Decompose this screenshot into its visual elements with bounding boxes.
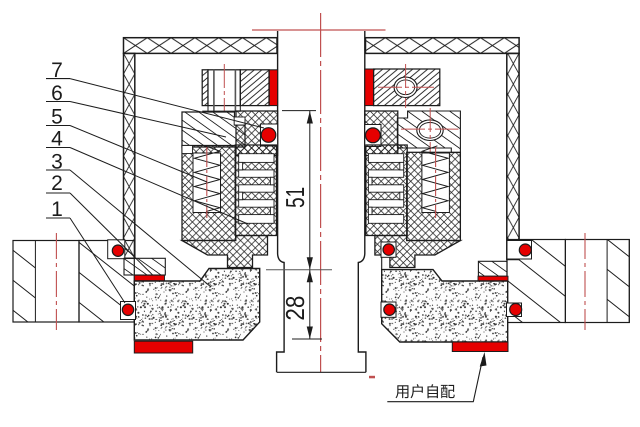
svg-text:28: 28 bbox=[280, 296, 310, 321]
svg-text:用户自配: 用户自配 bbox=[395, 384, 455, 401]
svg-text:2: 2 bbox=[51, 172, 63, 195]
svg-text:51: 51 bbox=[280, 187, 310, 208]
